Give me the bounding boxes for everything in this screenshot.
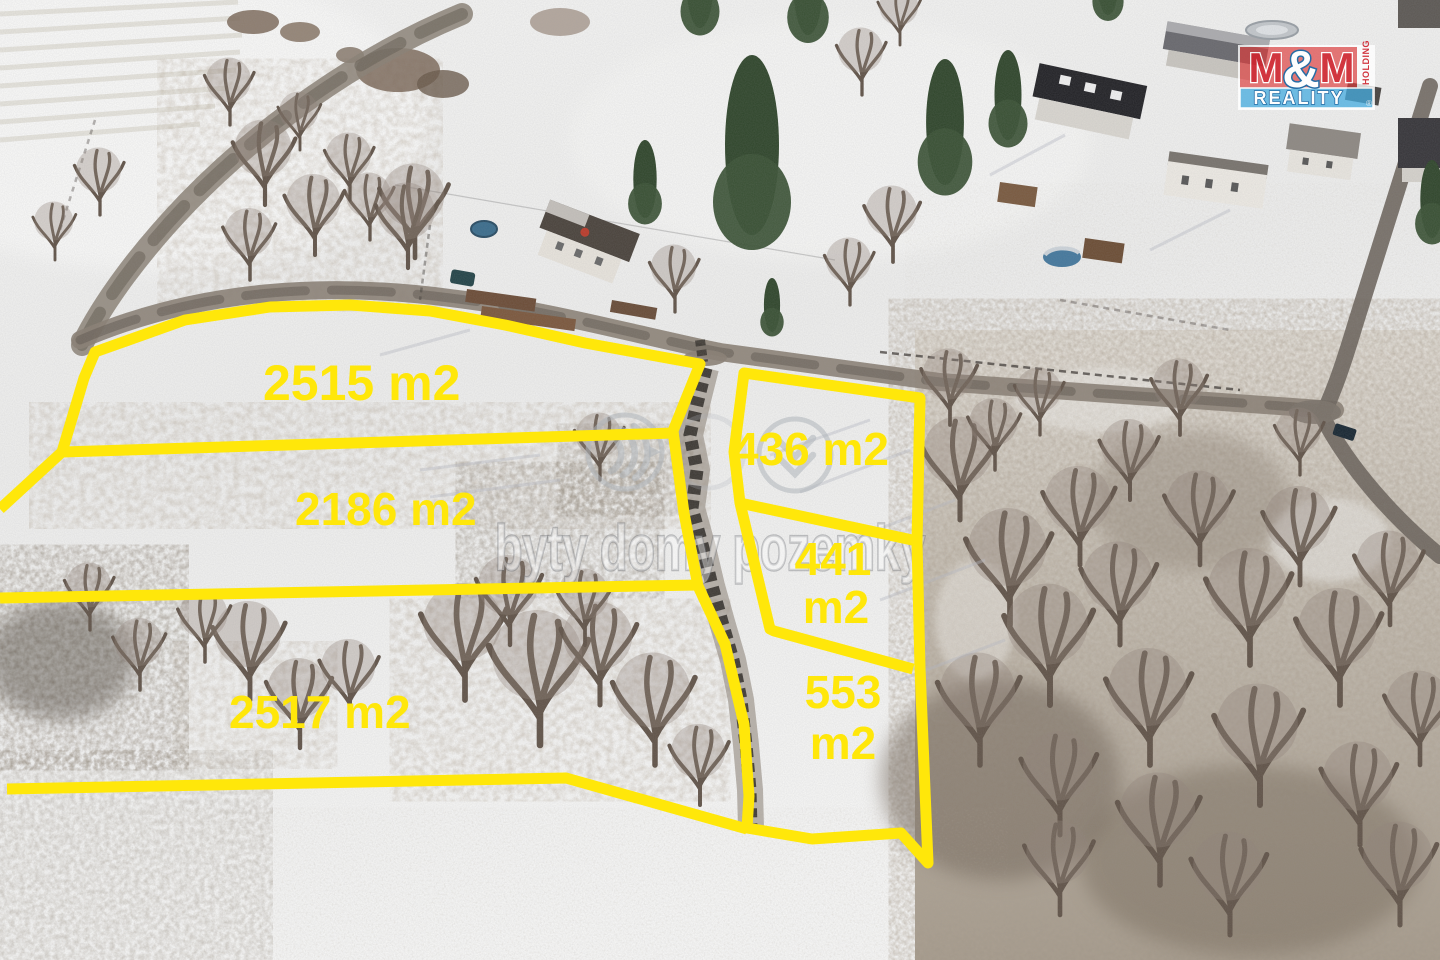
logo-m-left: M — [1249, 44, 1284, 91]
plot-label-553-line1: 553 — [805, 666, 882, 718]
plot-label-441-line1: 441 — [795, 533, 872, 585]
plot-label-2186: 2186 m2 — [295, 483, 477, 535]
plot-label-2517: 2517 m2 — [229, 686, 411, 738]
logo-holding-text: HOLDING — [1361, 40, 1371, 85]
agency-logo: M M & HOLDING REALITY ® — [1239, 40, 1374, 109]
logo-reality-text: REALITY — [1253, 88, 1344, 108]
logo-m-right: M — [1320, 44, 1355, 91]
logo-registered-mark: ® — [1366, 99, 1372, 108]
plot-label-441-line2: m2 — [803, 581, 869, 633]
aerial-photo: byty domy pozemky 2515 m2 2186 m2 2517 m… — [0, 0, 1440, 960]
plot-label-553-line2: m2 — [810, 717, 876, 769]
plot-label-2515: 2515 m2 — [263, 355, 460, 411]
plot-label-436: 436 m2 — [733, 423, 889, 475]
aerial-photo-listing: Winter aerial drone photograph of snow-c… — [0, 0, 1440, 960]
